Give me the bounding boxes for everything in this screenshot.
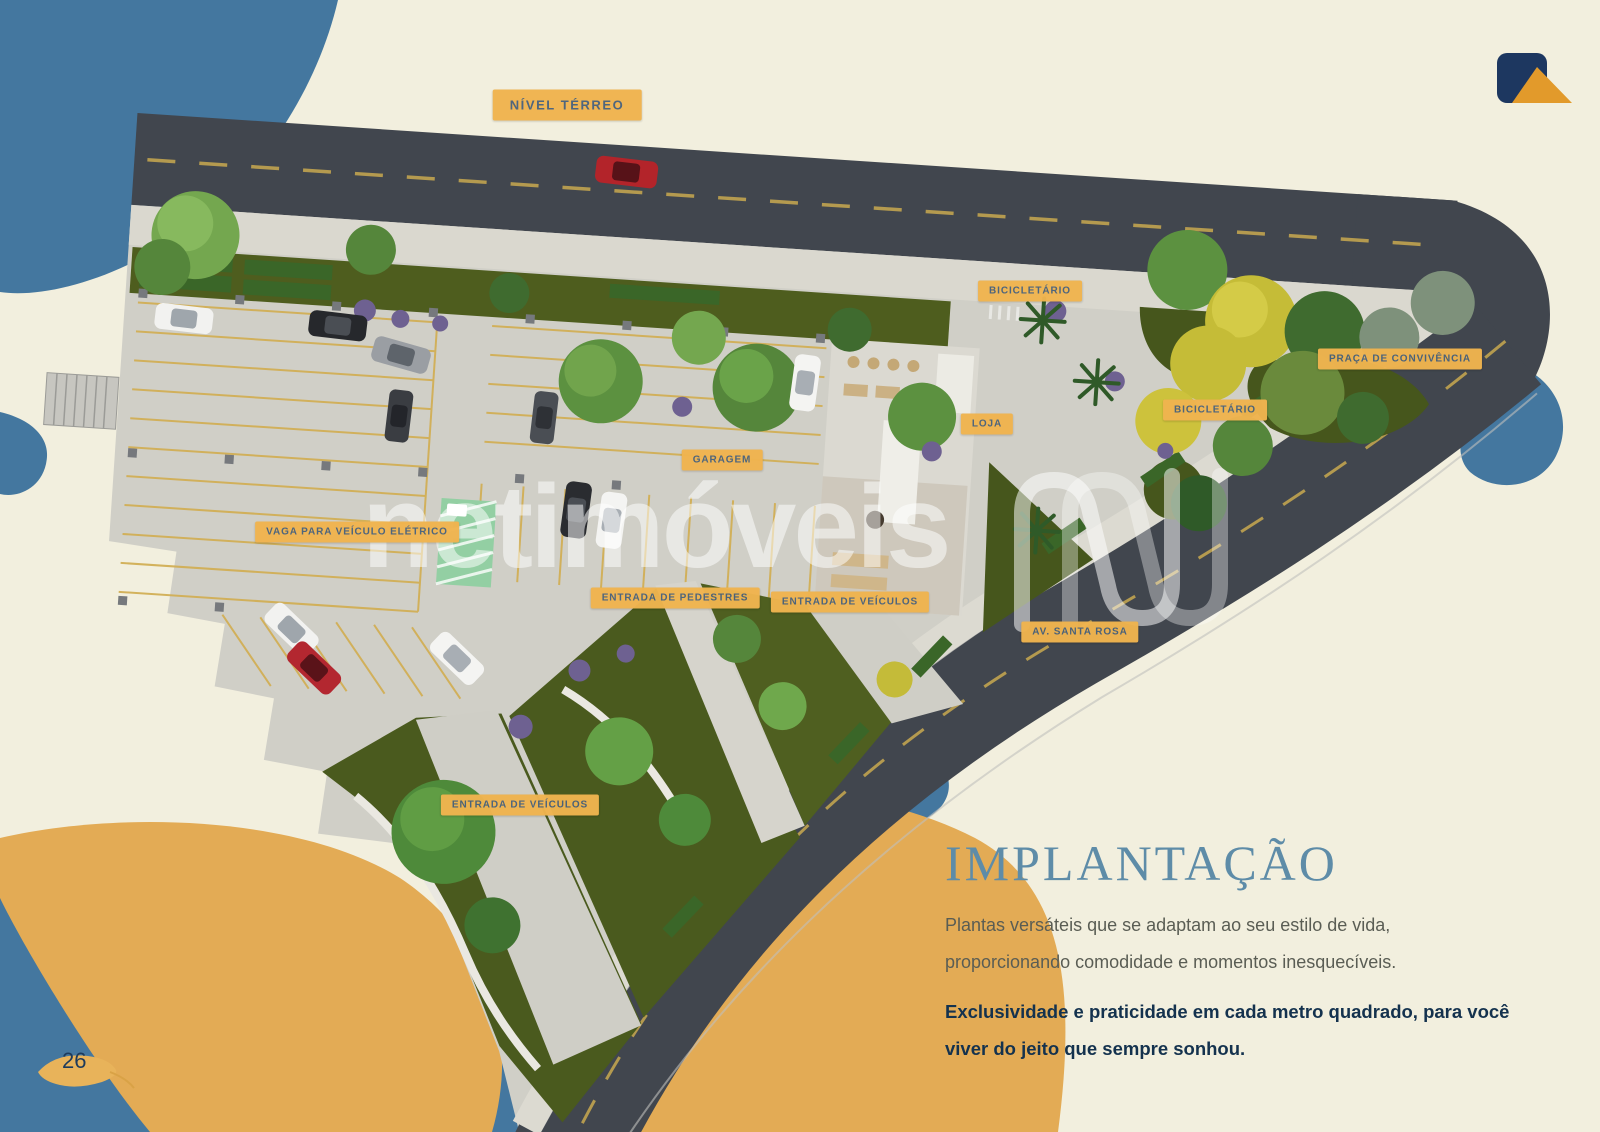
brochure-page: { "page": { "number": "26" }, "watermark… [0, 0, 1600, 1132]
brand-logo-icon [1460, 45, 1600, 135]
section-paragraph: Plantas versáteis que se adaptam ao seu … [945, 907, 1490, 981]
plan-label-badge: ENTRADA DE VEÍCULOS [771, 592, 929, 613]
page-title: IMPLANTAÇÃO [945, 836, 1565, 891]
section-highlight: Exclusividade e praticidade em cada metr… [945, 993, 1510, 1067]
plan-label-badge: ENTRADA DE PEDESTRES [591, 588, 760, 609]
plan-label-badge: ENTRADA DE VEÍCULOS [441, 795, 599, 816]
page-number: 26 [62, 1048, 86, 1074]
plan-label-badge: PRAÇA DE CONVIVÊNCIA [1318, 349, 1482, 370]
plan-label-badge: LOJA [961, 414, 1013, 435]
plan-label-badge: AV. SANTA ROSA [1021, 622, 1138, 643]
plan-label-badge: VAGA PARA VEÍCULO ELÉTRICO [255, 522, 459, 543]
plan-label-badge: BICICLETÁRIO [978, 281, 1082, 302]
section-block: IMPLANTAÇÃO Plantas versáteis que se ada… [945, 836, 1565, 1067]
plan-label-badge: NÍVEL TÉRREO [493, 90, 642, 121]
plan-label-badge: GARAGEM [682, 450, 763, 471]
plan-label-badge: BICICLETÁRIO [1163, 400, 1267, 421]
